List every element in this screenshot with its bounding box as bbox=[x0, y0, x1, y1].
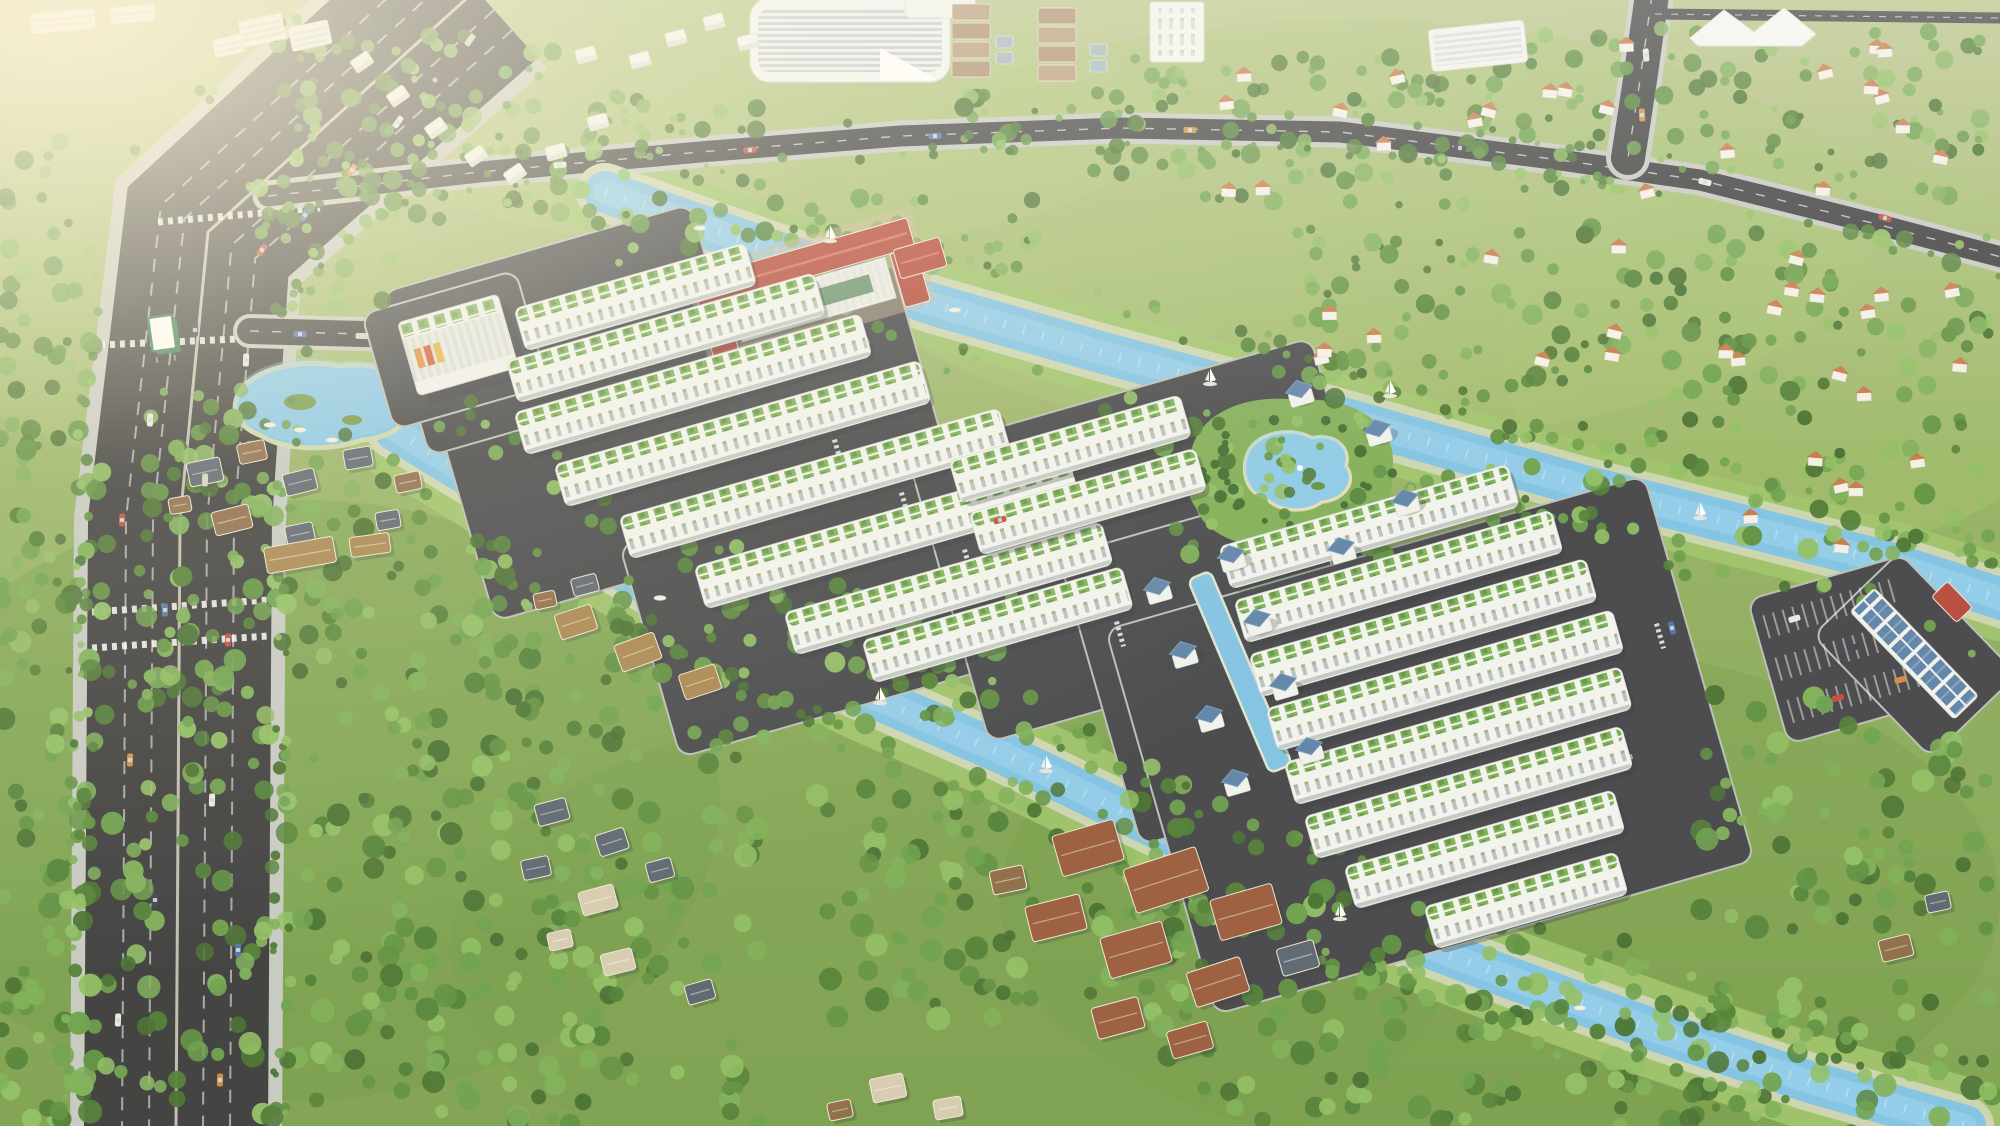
aerial-master-plan-render bbox=[0, 0, 2000, 1126]
screenshot-root bbox=[0, 0, 2000, 1126]
warm-tint bbox=[0, 0, 2000, 1126]
